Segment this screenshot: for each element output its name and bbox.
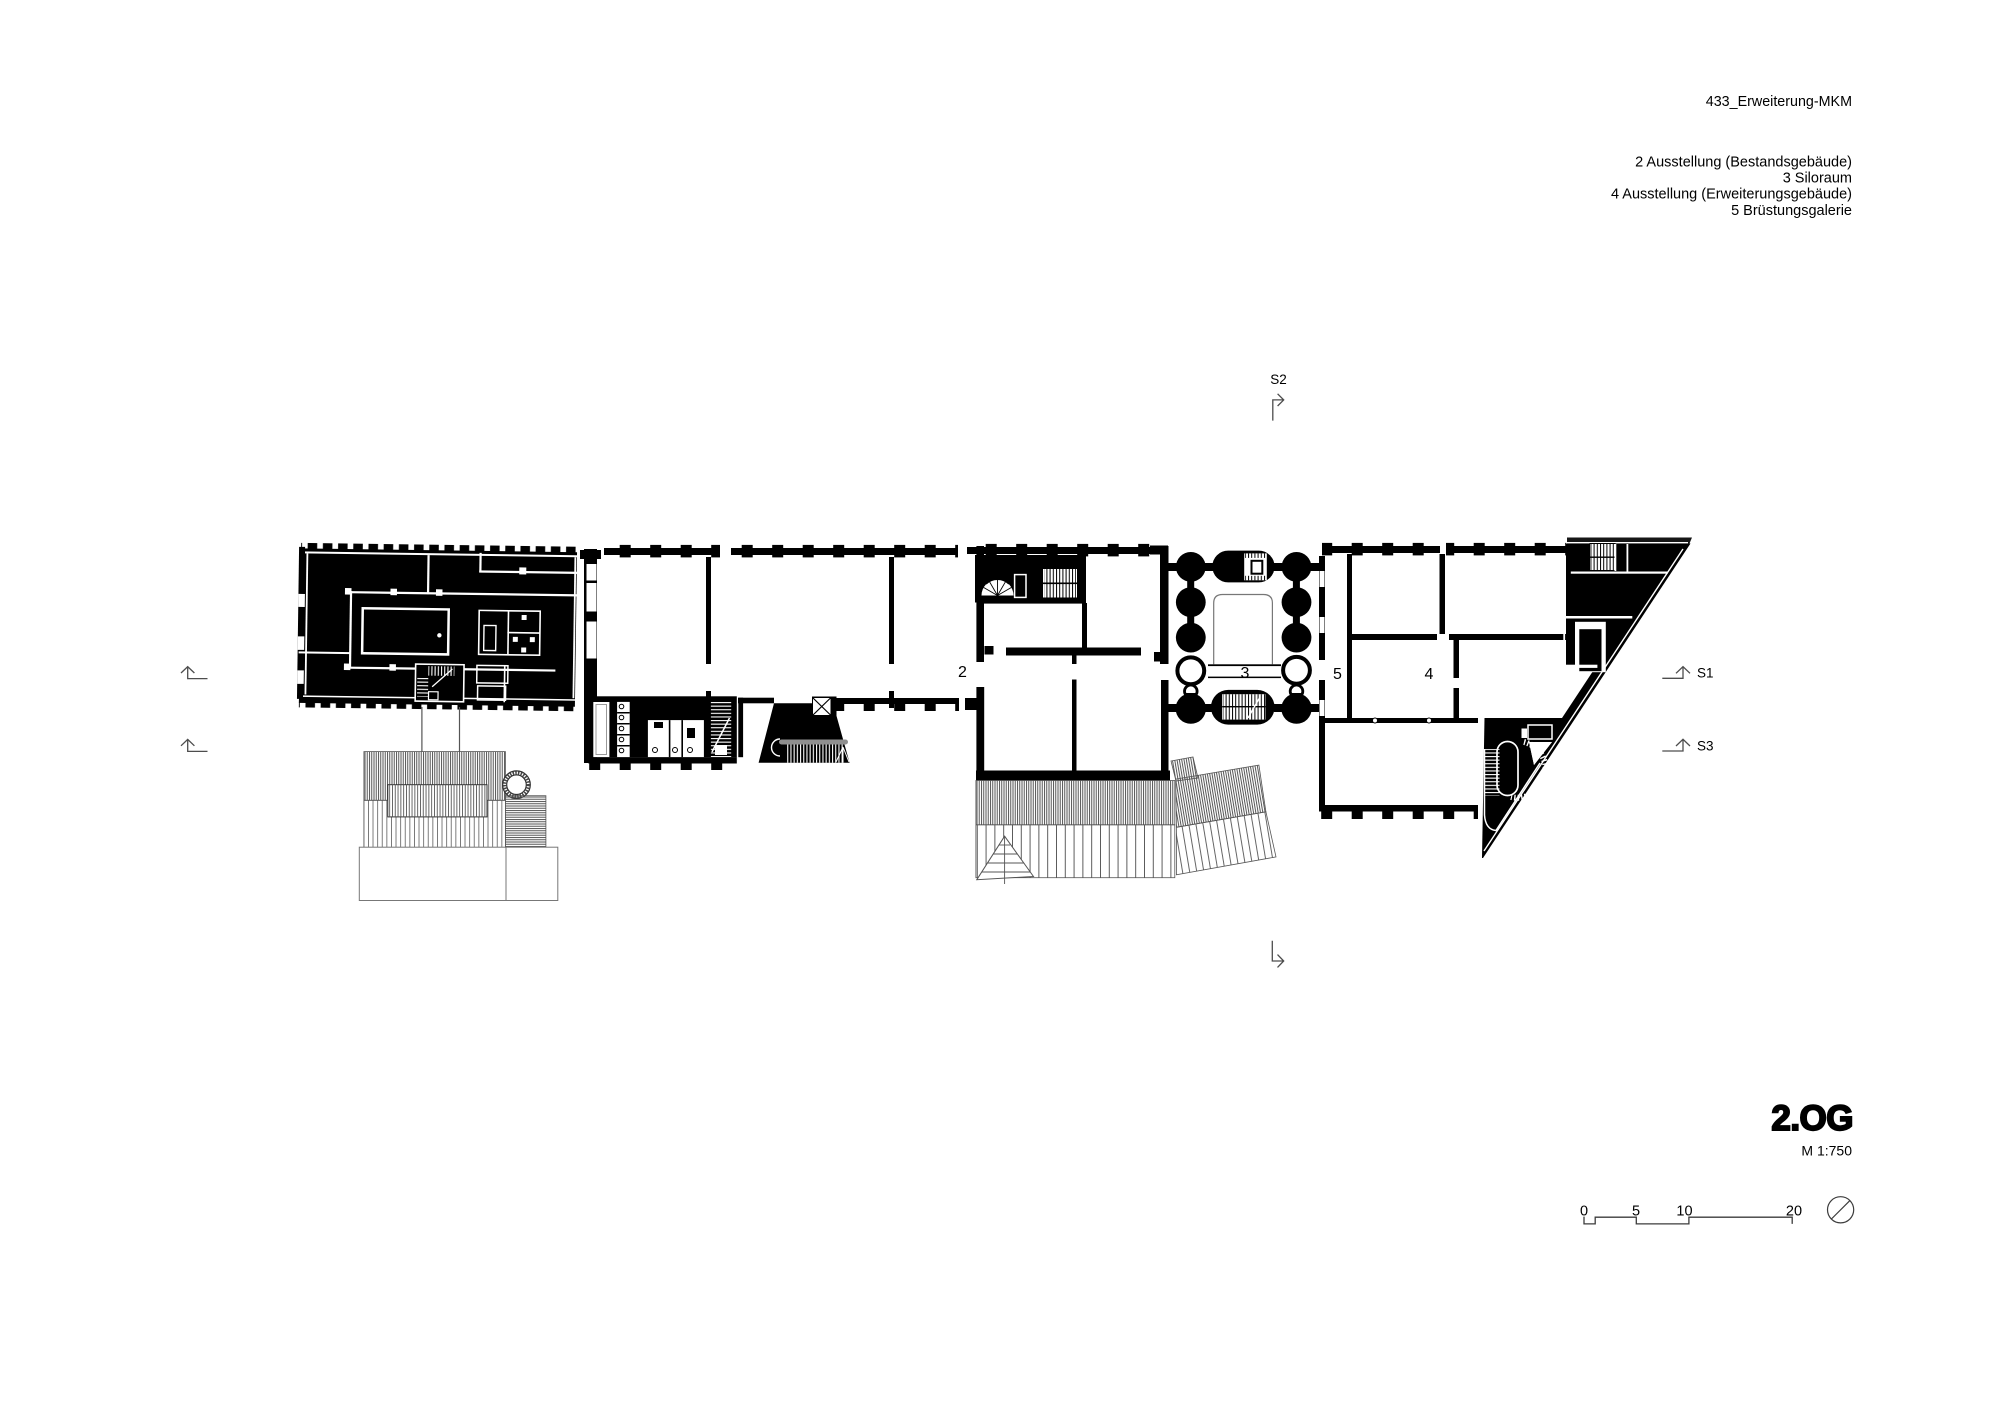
svg-text:4 Ausstellung (Erweiterungsgeb: 4 Ausstellung (Erweiterungsgebäude) xyxy=(1611,187,1852,203)
svg-text:2 Ausstellung (Bestandsgebäude: 2 Ausstellung (Bestandsgebäude) xyxy=(1635,155,1852,171)
svg-text:3 Siloraum: 3 Siloraum xyxy=(1783,171,1852,187)
svg-text:M 1:750: M 1:750 xyxy=(1801,1143,1852,1159)
svg-text:3: 3 xyxy=(1241,665,1250,682)
svg-text:10: 10 xyxy=(1676,1204,1692,1220)
svg-text:4: 4 xyxy=(1425,666,1434,683)
svg-text:433_Erweiterung-MKM: 433_Erweiterung-MKM xyxy=(1706,94,1852,110)
svg-text:2: 2 xyxy=(958,664,967,681)
svg-text:S3: S3 xyxy=(1697,739,1714,754)
svg-text:S1: S1 xyxy=(1697,666,1714,681)
svg-text:5: 5 xyxy=(1333,666,1342,683)
svg-text:S2: S2 xyxy=(1270,372,1287,387)
svg-text:2.OG: 2.OG xyxy=(1771,1099,1853,1138)
svg-text:5 Brüstungsgalerie: 5 Brüstungsgalerie xyxy=(1731,203,1852,219)
svg-text:5: 5 xyxy=(1632,1204,1640,1220)
svg-text:0: 0 xyxy=(1580,1204,1588,1220)
svg-text:20: 20 xyxy=(1786,1204,1802,1220)
